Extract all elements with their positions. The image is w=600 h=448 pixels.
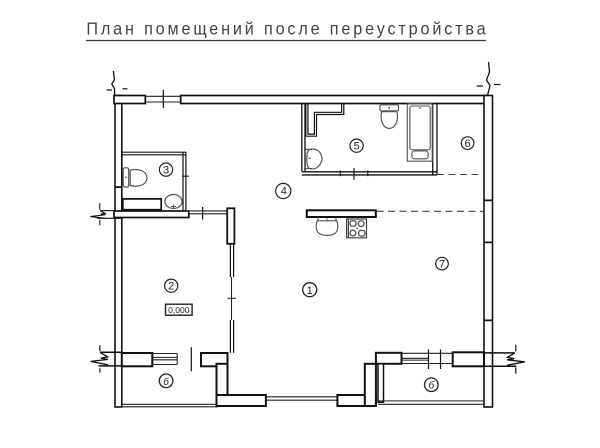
svg-text:6: 6 bbox=[465, 138, 471, 150]
svg-text:5: 5 bbox=[354, 141, 360, 153]
svg-text:3: 3 bbox=[163, 165, 169, 177]
svg-text:7: 7 bbox=[439, 259, 445, 271]
svg-text:2: 2 bbox=[168, 281, 174, 293]
svg-text:0,000: 0,000 bbox=[168, 305, 190, 315]
svg-text:б: б bbox=[163, 376, 169, 388]
svg-text:1: 1 bbox=[307, 285, 313, 297]
svg-text:4: 4 bbox=[281, 186, 287, 198]
svg-text:б: б bbox=[428, 380, 434, 392]
svg-text:План помещений после переустро: План помещений после переустройства bbox=[86, 19, 488, 39]
